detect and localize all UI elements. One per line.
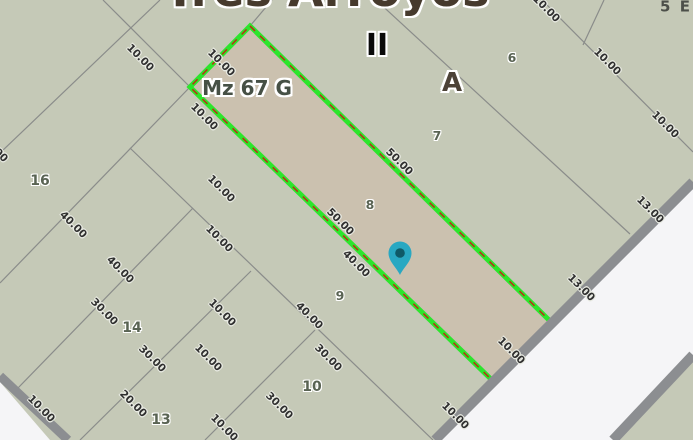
parcel-number: 10 xyxy=(302,380,321,394)
pin-body xyxy=(389,242,412,276)
location-pin-icon[interactable] xyxy=(387,240,413,276)
parcel-number: 14 xyxy=(122,321,141,335)
parcel-number: 9 xyxy=(336,290,345,303)
map-title: Tres Arroyos xyxy=(164,0,489,13)
parcel-number: 13 xyxy=(151,413,170,427)
block-label: Mz 67 G xyxy=(202,78,292,98)
pin-center-dot xyxy=(395,248,405,258)
map-canvas[interactable]: Tres Arroyos II A 5 E Mz 67 G 16 14 13 1… xyxy=(0,0,693,440)
parcel-number: 7 xyxy=(433,130,442,143)
parcel-number: 16 xyxy=(30,174,49,188)
zone-label-corner: 5 E xyxy=(660,0,692,15)
zone-label-roman: II xyxy=(366,31,388,61)
parcel-number: 6 xyxy=(508,52,517,65)
parcel-number: 8 xyxy=(366,199,375,212)
zone-label-section: A xyxy=(442,70,462,96)
